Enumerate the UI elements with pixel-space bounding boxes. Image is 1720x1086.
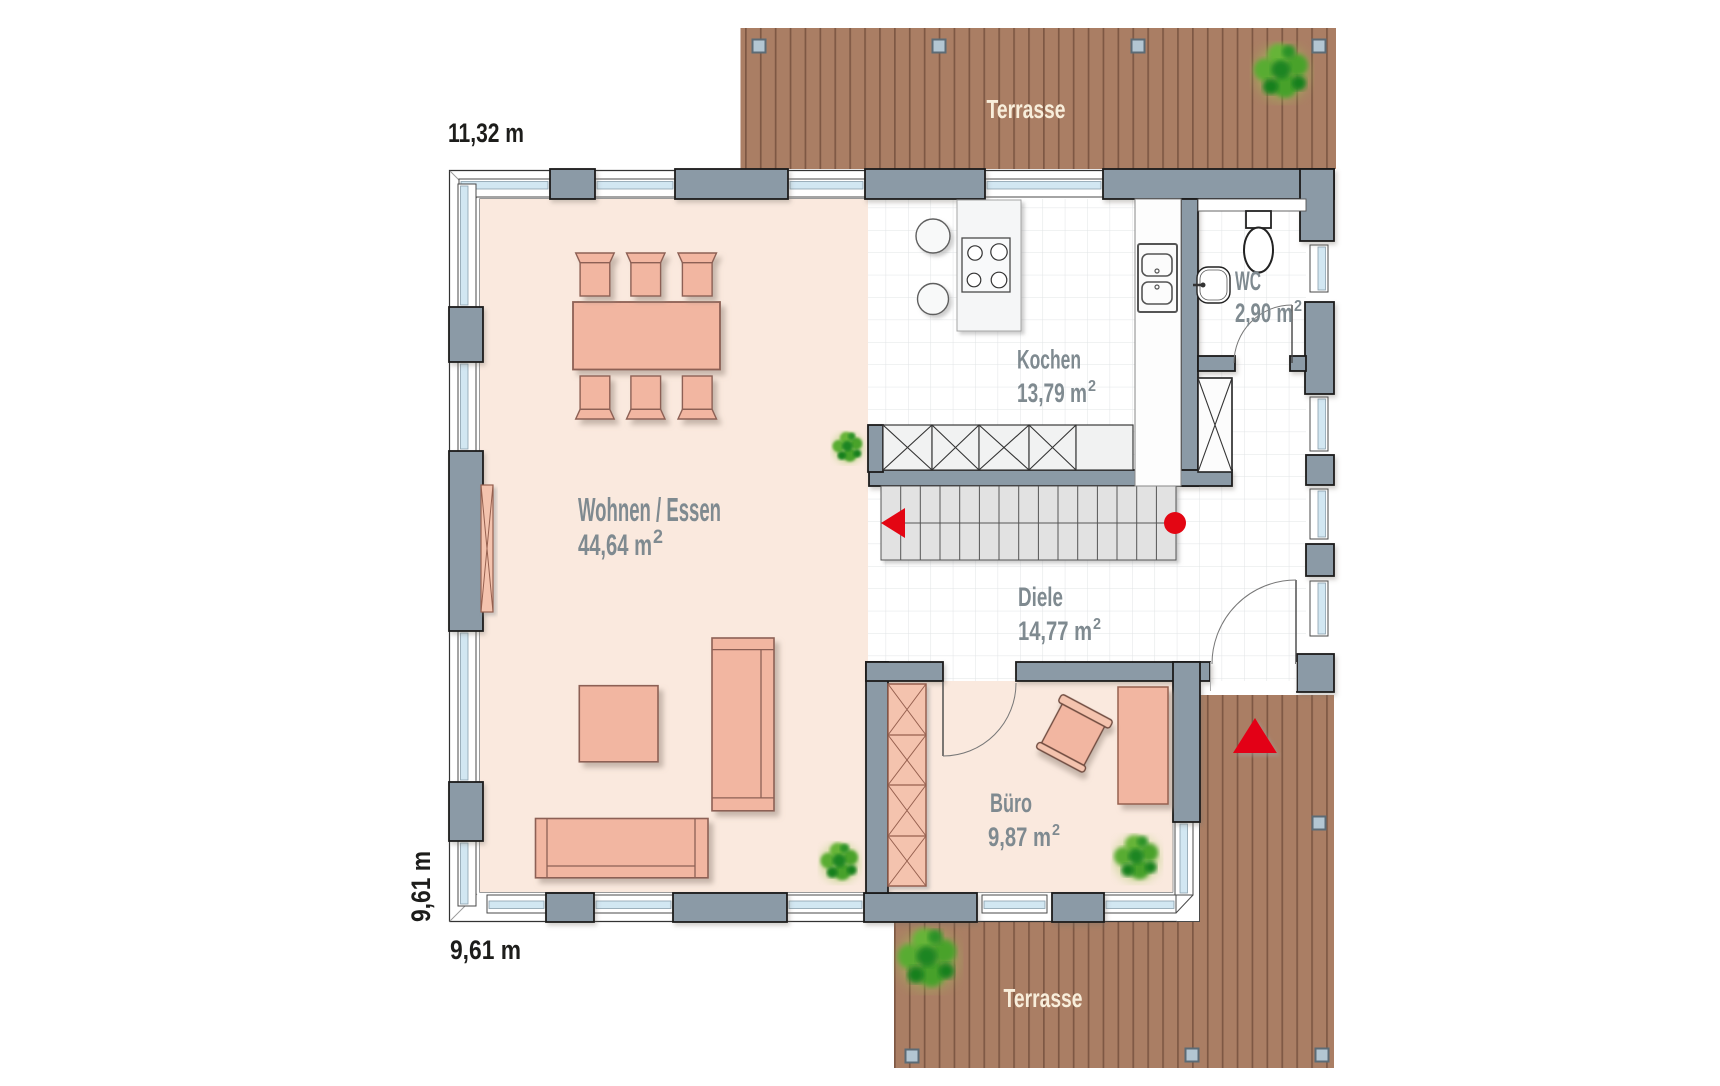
svg-text:Terrasse: Terrasse <box>987 94 1066 124</box>
svg-text:13,79 m: 13,79 m <box>1017 378 1087 408</box>
svg-text:2: 2 <box>653 527 663 548</box>
svg-text:2: 2 <box>1093 616 1101 633</box>
svg-text:Wohnen / Essen: Wohnen / Essen <box>578 491 721 528</box>
svg-text:11,32 m: 11,32 m <box>448 118 524 148</box>
svg-text:Terrasse: Terrasse <box>1004 983 1083 1013</box>
svg-text:2: 2 <box>1294 298 1302 315</box>
svg-text:2,90 m: 2,90 m <box>1235 298 1293 328</box>
svg-text:2: 2 <box>1088 378 1096 395</box>
svg-text:Kochen: Kochen <box>1017 345 1081 375</box>
svg-text:Diele: Diele <box>1018 582 1063 612</box>
svg-text:9,87 m: 9,87 m <box>988 822 1051 852</box>
svg-text:14,77 m: 14,77 m <box>1018 616 1092 646</box>
svg-text:9,61 m: 9,61 m <box>450 935 521 965</box>
svg-text:44,64 m: 44,64 m <box>578 529 652 562</box>
svg-text:Büro: Büro <box>990 788 1032 818</box>
svg-text:9,61 m: 9,61 m <box>406 851 436 922</box>
svg-text:2: 2 <box>1052 822 1060 839</box>
svg-text:WC: WC <box>1235 266 1261 296</box>
